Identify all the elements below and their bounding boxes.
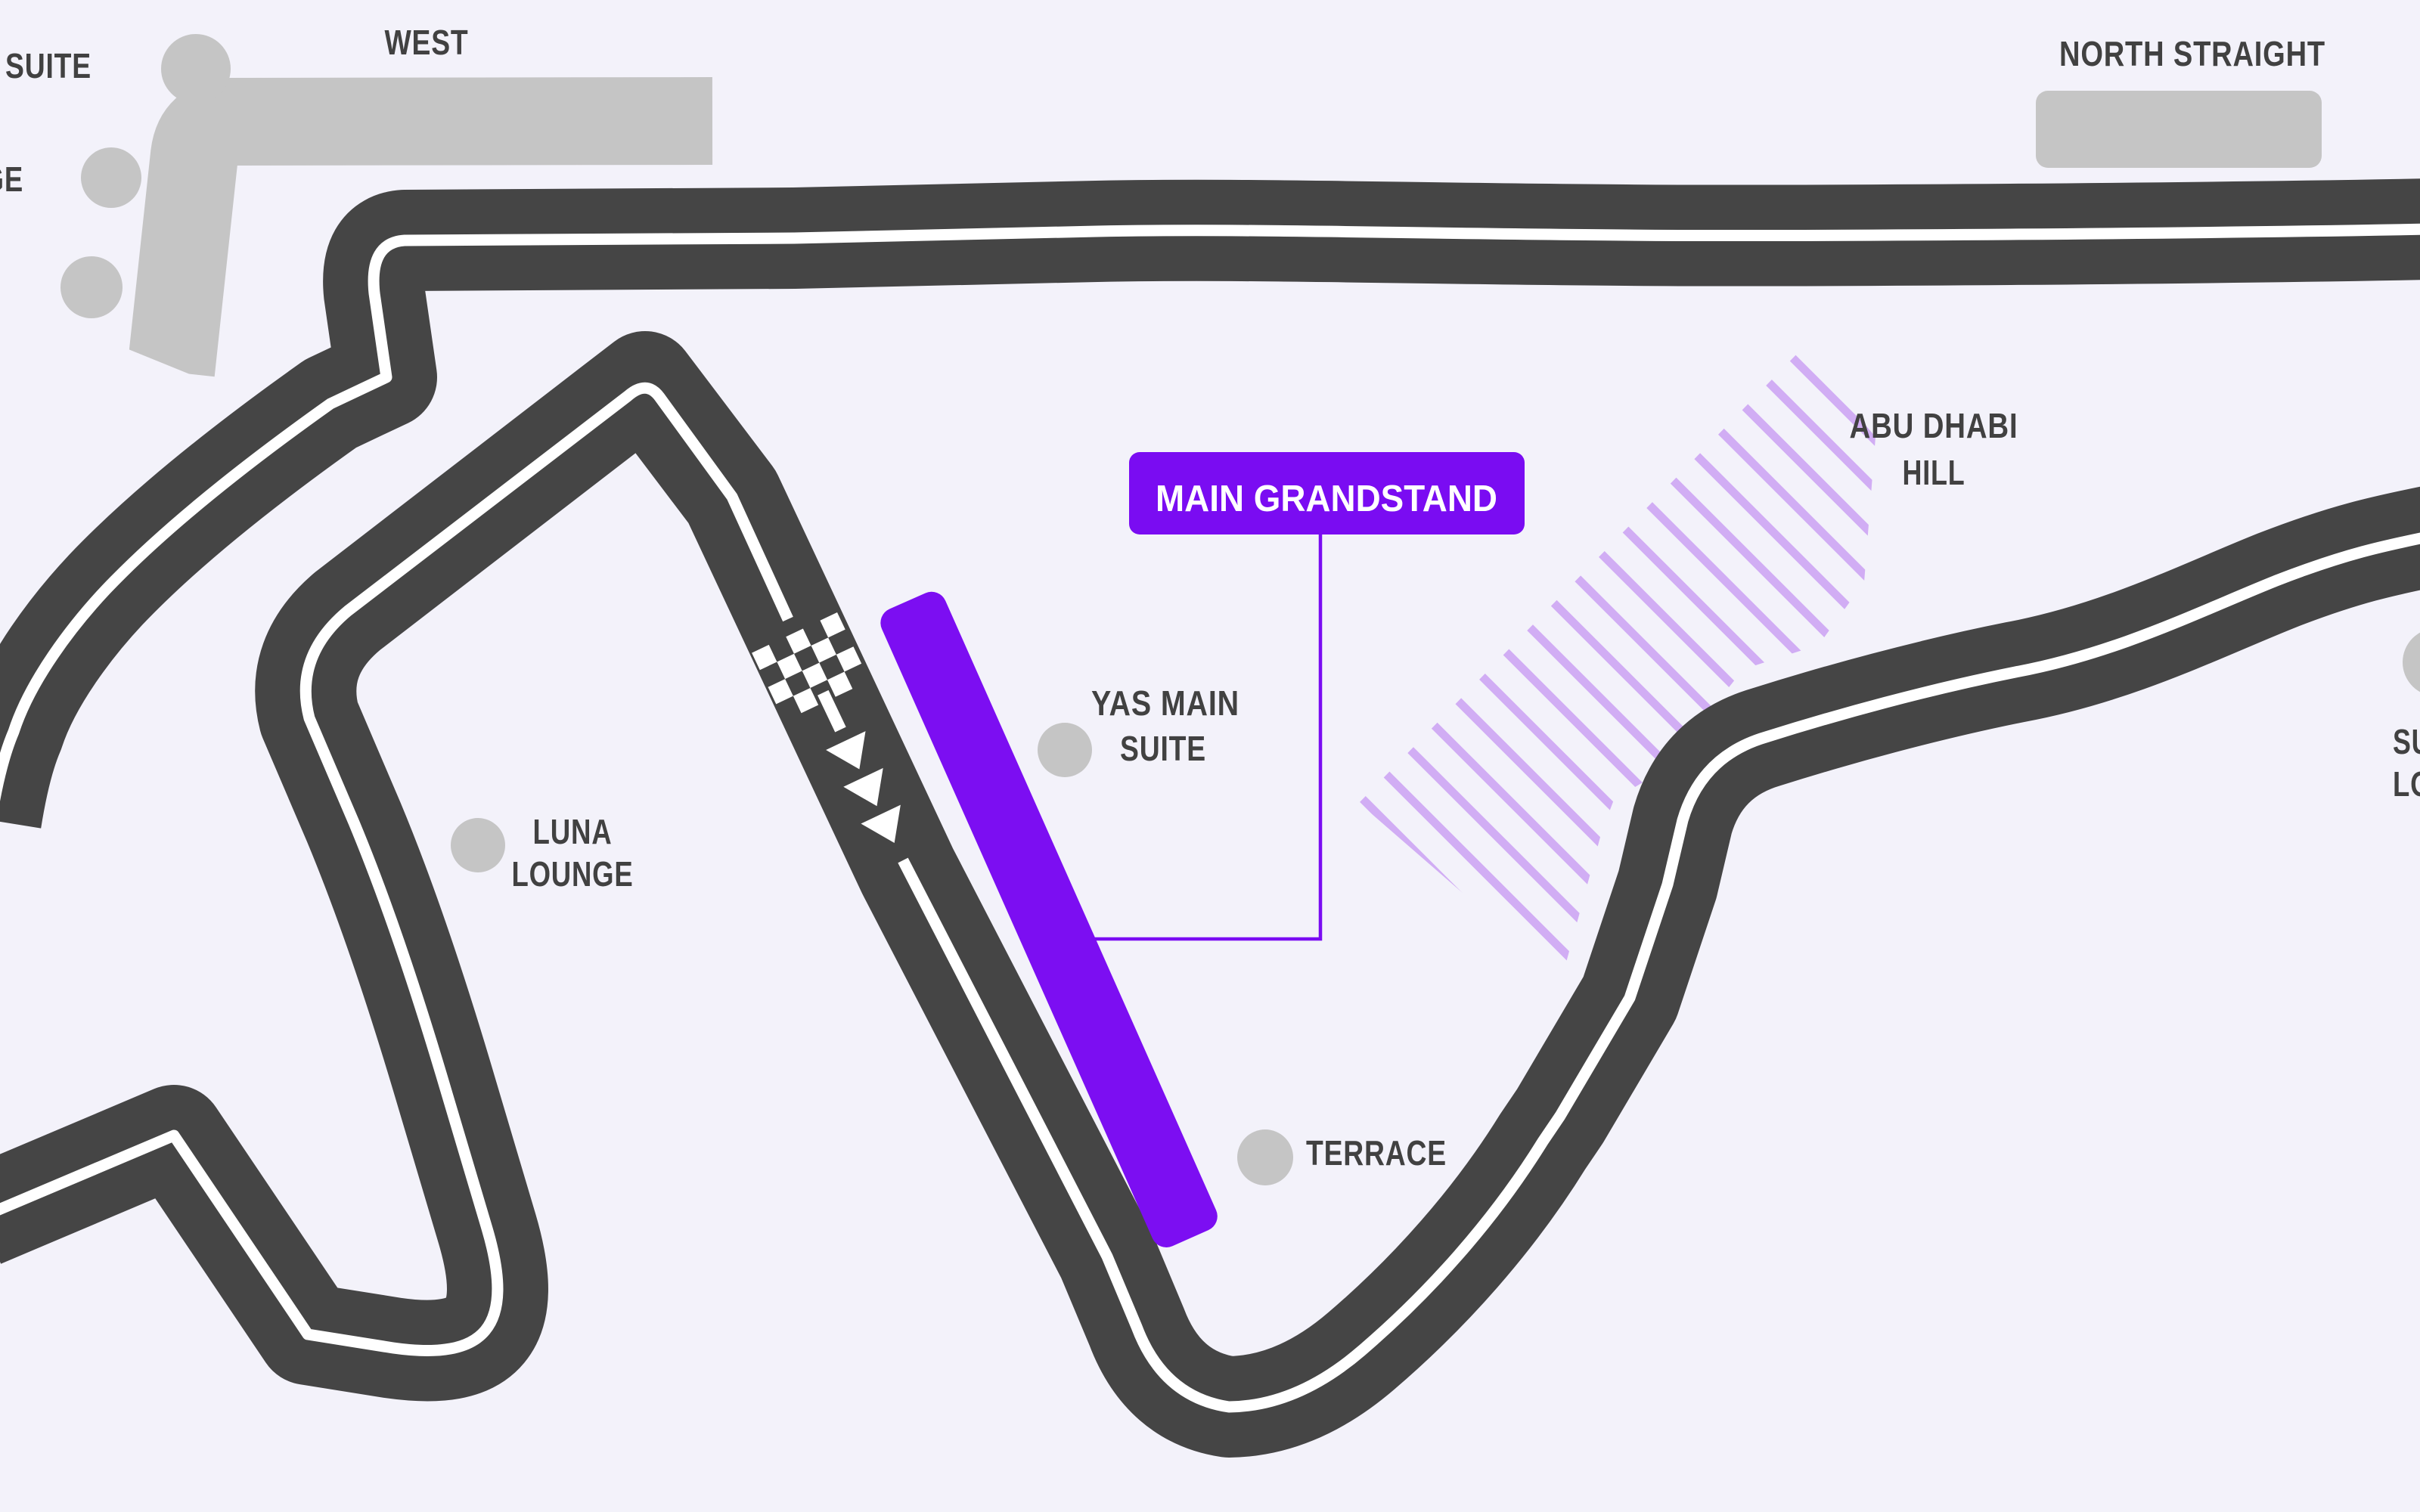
svg-text:TERRACE: TERRACE <box>1306 1133 1447 1173</box>
svg-text:ABU DHABI: ABU DHABI <box>1850 406 2018 445</box>
svg-text:LOUNGE: LOUNGE <box>2393 764 2420 804</box>
svg-text:SUNSET: SUNSET <box>2393 722 2420 761</box>
svg-text:NORTH STRAIGHT: NORTH STRAIGHT <box>2059 34 2325 73</box>
svg-text:LOUNGE: LOUNGE <box>512 854 634 894</box>
svg-text:WEST: WEST <box>385 23 469 62</box>
svg-text:LUNA: LUNA <box>533 812 613 851</box>
svg-text:MAIN GRANDSTAND: MAIN GRANDSTAND <box>1156 479 1497 519</box>
svg-text:SUITE: SUITE <box>5 46 92 85</box>
svg-text:YAS MAIN: YAS MAIN <box>1091 683 1239 723</box>
svg-text:LOUNGE: LOUNGE <box>0 160 23 199</box>
svg-text:HILL: HILL <box>1903 453 1965 492</box>
svg-text:SUITE: SUITE <box>1120 729 1206 768</box>
